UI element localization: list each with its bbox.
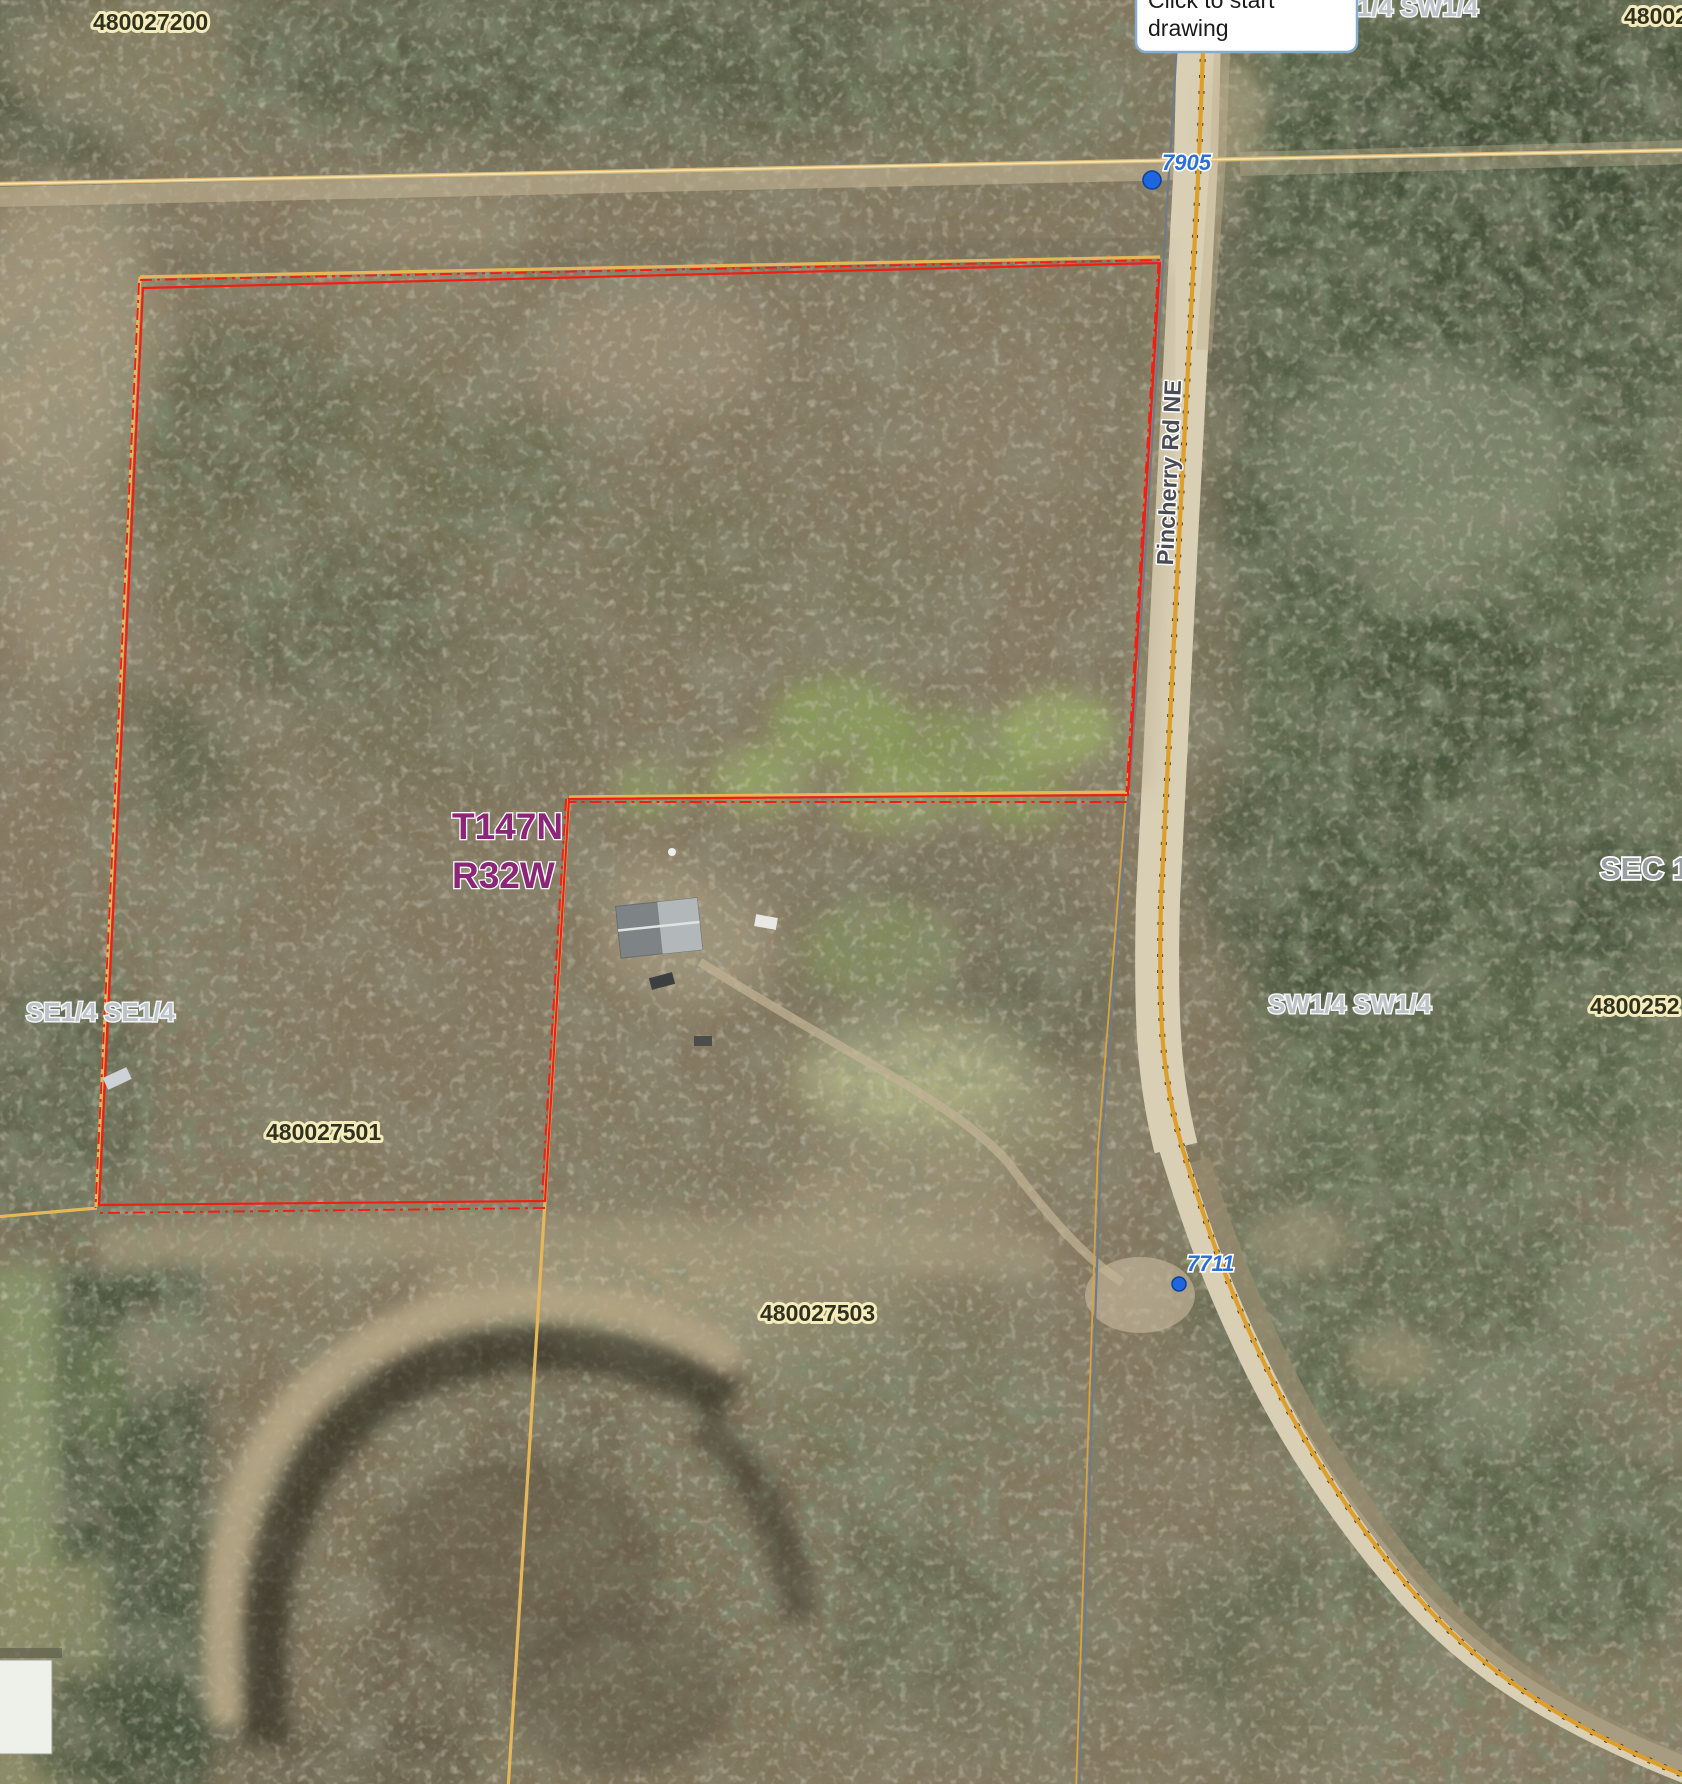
- svg-text:7905: 7905: [1162, 150, 1212, 175]
- svg-text:SE1/4 SE1/4: SE1/4 SE1/4: [26, 997, 175, 1027]
- svg-text:drawing: drawing: [1148, 15, 1229, 41]
- svg-text:480027501: 480027501: [266, 1119, 381, 1145]
- svg-text:R32W: R32W: [452, 855, 555, 896]
- svg-text:SW1/4 SW1/4: SW1/4 SW1/4: [1268, 989, 1432, 1019]
- svg-text:480027503: 480027503: [760, 1300, 875, 1326]
- svg-text:7711: 7711: [1187, 1251, 1234, 1276]
- svg-text:Click to start: Click to start: [1148, 0, 1275, 13]
- svg-text:T147N: T147N: [452, 806, 563, 847]
- svg-text:480027: 480027: [1624, 3, 1682, 29]
- svg-text:480027200: 480027200: [93, 9, 208, 35]
- svg-text:1/4 SW1/4: 1/4 SW1/4: [1357, 0, 1479, 22]
- svg-text:4800252: 4800252: [1590, 993, 1680, 1019]
- svg-text:SEC 1: SEC 1: [1600, 851, 1682, 886]
